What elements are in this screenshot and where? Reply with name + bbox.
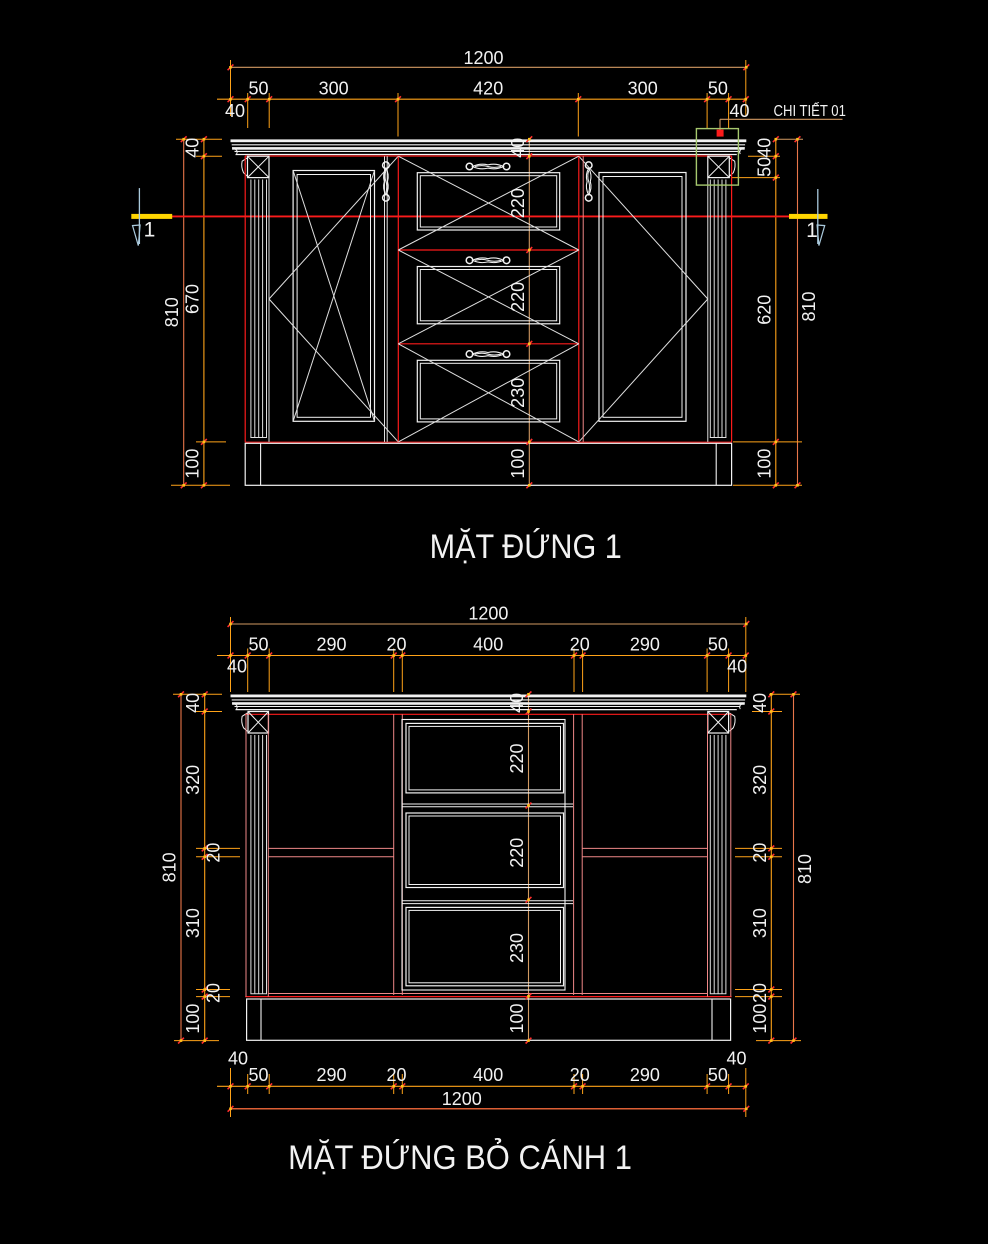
svg-text:40: 40 xyxy=(729,101,749,121)
svg-text:290: 290 xyxy=(630,635,660,655)
svg-text:20: 20 xyxy=(204,983,224,1003)
svg-text:220: 220 xyxy=(508,282,528,312)
svg-text:1200: 1200 xyxy=(468,604,508,624)
svg-text:40: 40 xyxy=(726,1049,746,1069)
svg-text:100: 100 xyxy=(182,449,202,479)
svg-text:40: 40 xyxy=(182,138,202,158)
svg-text:320: 320 xyxy=(183,765,203,795)
svg-text:100: 100 xyxy=(754,449,774,479)
svg-text:400: 400 xyxy=(473,1065,503,1085)
svg-text:40: 40 xyxy=(225,101,245,121)
svg-text:810: 810 xyxy=(162,297,182,327)
svg-text:50: 50 xyxy=(248,78,268,98)
svg-text:1200: 1200 xyxy=(463,48,503,68)
svg-text:1200: 1200 xyxy=(442,1089,482,1109)
svg-text:100: 100 xyxy=(508,449,528,479)
svg-text:50: 50 xyxy=(708,635,728,655)
svg-text:40: 40 xyxy=(228,1049,248,1069)
svg-text:230: 230 xyxy=(508,378,528,408)
svg-text:310: 310 xyxy=(750,908,770,938)
svg-text:670: 670 xyxy=(182,284,202,314)
svg-text:320: 320 xyxy=(750,765,770,795)
svg-text:20: 20 xyxy=(204,843,224,863)
svg-text:300: 300 xyxy=(628,78,658,98)
svg-text:40: 40 xyxy=(227,656,247,676)
svg-text:100: 100 xyxy=(750,1004,770,1034)
svg-text:50: 50 xyxy=(754,157,774,177)
svg-text:230: 230 xyxy=(507,933,527,963)
svg-text:290: 290 xyxy=(316,635,346,655)
svg-text:50: 50 xyxy=(708,1065,728,1085)
svg-text:MẶT ĐỨNG BỎ CÁNH 1: MẶT ĐỨNG BỎ CÁNH 1 xyxy=(288,1138,632,1177)
svg-text:220: 220 xyxy=(507,743,527,773)
svg-text:20: 20 xyxy=(750,843,770,863)
svg-text:40: 40 xyxy=(750,693,770,713)
svg-text:420: 420 xyxy=(473,78,503,98)
svg-text:20: 20 xyxy=(570,635,590,655)
svg-text:400: 400 xyxy=(473,635,503,655)
svg-text:810: 810 xyxy=(160,852,180,882)
svg-text:290: 290 xyxy=(316,1065,346,1085)
svg-text:220: 220 xyxy=(507,838,527,868)
svg-text:40: 40 xyxy=(754,138,774,158)
svg-text:CHI TIẾT 01: CHI TIẾT 01 xyxy=(774,102,846,121)
svg-text:50: 50 xyxy=(248,635,268,655)
svg-text:1: 1 xyxy=(144,219,156,242)
svg-text:40: 40 xyxy=(508,138,528,158)
svg-text:310: 310 xyxy=(183,908,203,938)
svg-text:50: 50 xyxy=(248,1065,268,1085)
svg-text:20: 20 xyxy=(570,1065,590,1085)
svg-text:20: 20 xyxy=(386,635,406,655)
svg-text:620: 620 xyxy=(754,295,774,325)
svg-text:50: 50 xyxy=(708,78,728,98)
svg-text:40: 40 xyxy=(727,656,747,676)
svg-text:220: 220 xyxy=(508,188,528,218)
svg-text:MẶT ĐỨNG 1: MẶT ĐỨNG 1 xyxy=(430,526,622,565)
svg-text:810: 810 xyxy=(795,854,815,884)
svg-text:810: 810 xyxy=(799,291,819,321)
svg-text:290: 290 xyxy=(630,1065,660,1085)
svg-text:40: 40 xyxy=(183,693,203,713)
svg-text:100: 100 xyxy=(183,1004,203,1034)
svg-text:100: 100 xyxy=(507,1003,527,1033)
svg-text:300: 300 xyxy=(319,78,349,98)
svg-text:20: 20 xyxy=(750,983,770,1003)
svg-text:1: 1 xyxy=(806,219,818,242)
svg-text:40: 40 xyxy=(507,693,527,713)
svg-text:20: 20 xyxy=(386,1065,406,1085)
